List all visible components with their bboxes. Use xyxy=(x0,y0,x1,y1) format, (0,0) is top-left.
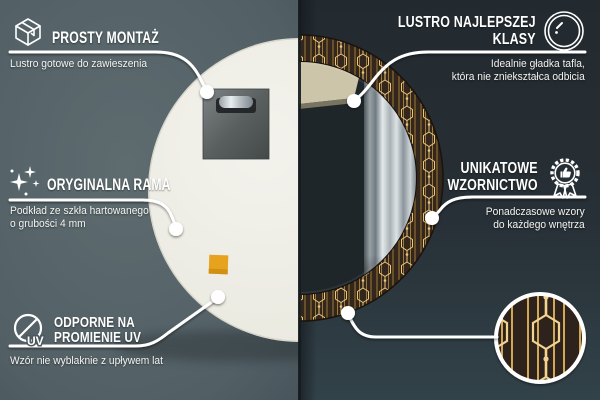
award-badge-icon xyxy=(545,156,585,200)
sparkles-icon xyxy=(5,163,43,199)
callout-subtitle: Podkład ze szkła hartowanego o grubości … xyxy=(10,205,204,231)
callout-title: ODPORNE NA PROMIENIE UV xyxy=(54,315,141,345)
no-uv-icon: UV xyxy=(10,311,48,349)
pattern-zoom-circle xyxy=(496,294,584,382)
mirror-shine-icon xyxy=(543,10,585,52)
mounting-plate xyxy=(203,89,269,159)
callout-title: UNIKATOWE WZORNICTWO xyxy=(448,160,538,194)
callout-subtitle: Lustro gotowe do zawieszenia xyxy=(10,58,187,71)
uv-label: UV xyxy=(27,334,44,348)
callout-lustro-klasy: LUSTRO NAJLEPSZEJ KLASY Idealnie gładka … xyxy=(359,10,585,84)
callout-subtitle: Ponadczasowe wzory do każdego wnętrza xyxy=(434,206,585,232)
callout-subtitle: Wzór nie wyblaknie z upływem lat xyxy=(10,355,163,368)
callout-oryginalna-rama: ORYGINALNA RAMA Podkład ze szkła hartowa… xyxy=(5,163,219,231)
split-divider xyxy=(298,0,301,400)
package-box-icon xyxy=(10,14,46,50)
callout-subtitle: Idealnie gładka tafla, która nie znieksz… xyxy=(375,58,585,84)
callout-unikatowe: UNIKATOWE WZORNICTWO Ponadczasowe wzory … xyxy=(422,156,585,232)
product-infographic: PROSTY MONTAŻ Lustro gotowe do zawieszen… xyxy=(0,0,600,400)
callout-title: ORYGINALNA RAMA xyxy=(47,175,171,195)
callout-prosty-montaz: PROSTY MONTAŻ Lustro gotowe do zawieszen… xyxy=(10,14,200,71)
callout-odporne-uv: UV ODPORNE NA PROMIENIE UV Wzór nie wybl… xyxy=(10,311,174,368)
callout-title: LUSTRO NAJLEPSZEJ KLASY xyxy=(398,14,536,48)
callout-title: PROSTY MONTAŻ xyxy=(52,28,159,48)
